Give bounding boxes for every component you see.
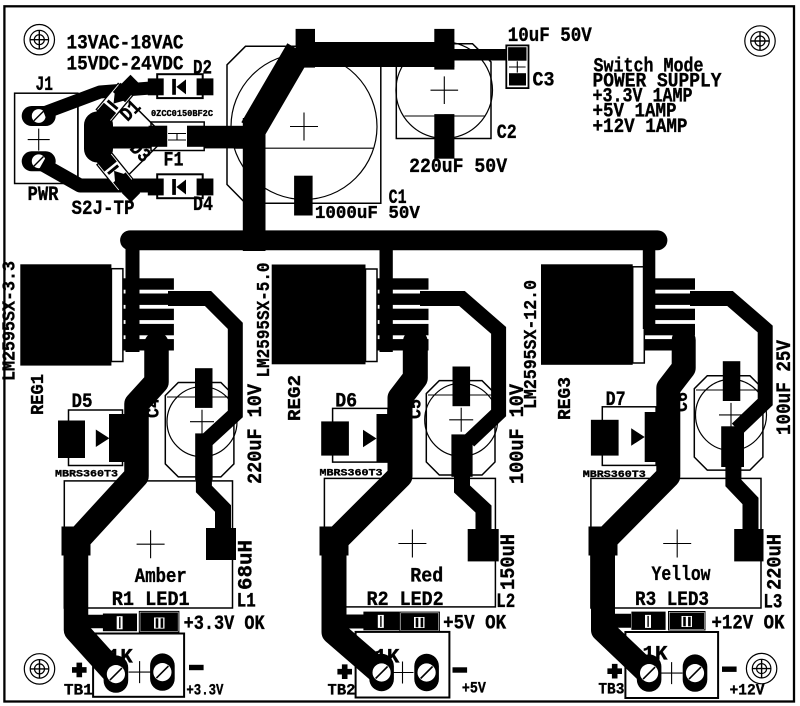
svg-text:C4: C4 — [145, 398, 165, 418]
svg-text:+12V: +12V — [730, 682, 765, 700]
svg-text:TB2: TB2 — [328, 681, 356, 699]
svg-text:C3: C3 — [533, 70, 555, 93]
svg-text:D7: D7 — [606, 389, 626, 412]
svg-text:220uH: 220uH — [765, 534, 788, 590]
svg-text:REG1: REG1 — [29, 374, 49, 415]
svg-text:TB3: TB3 — [598, 681, 624, 699]
svg-text:+5V: +5V — [462, 680, 486, 698]
svg-text:68uH: 68uH — [236, 540, 259, 590]
svg-text:L2: L2 — [496, 591, 515, 614]
svg-text:Amber: Amber — [135, 566, 187, 589]
svg-text:100uF 25V: 100uF 25V — [774, 340, 797, 435]
svg-text:S2J-TP: S2J-TP — [72, 198, 135, 221]
svg-text:R1 LED1: R1 LED1 — [112, 589, 190, 612]
svg-text:220uF 10V: 220uF 10V — [245, 384, 268, 484]
svg-text:+12V 1AMP: +12V 1AMP — [593, 116, 688, 139]
svg-text:0ZCC0150BF2C: 0ZCC0150BF2C — [151, 108, 213, 119]
svg-text:TB1: TB1 — [64, 681, 93, 699]
svg-text:C2: C2 — [497, 122, 517, 145]
svg-text:+5V OK: +5V OK — [443, 613, 506, 636]
svg-text:10uF 50V: 10uF 50V — [508, 25, 592, 48]
svg-text:+3.3V OK: +3.3V OK — [184, 613, 265, 636]
svg-text:LM2595SX-12.0: LM2595SX-12.0 — [522, 280, 542, 409]
svg-text:R3 LED3: R3 LED3 — [635, 589, 709, 612]
svg-text:MBRS360T3: MBRS360T3 — [583, 469, 646, 481]
svg-text:+12V OK: +12V OK — [712, 613, 785, 636]
svg-text:REG3: REG3 — [556, 377, 576, 420]
svg-text:D6: D6 — [335, 391, 357, 414]
svg-text:LM2595SX-3.3: LM2595SX-3.3 — [1, 261, 21, 381]
svg-text:13VAC-18VAC: 13VAC-18VAC — [67, 33, 184, 56]
svg-text:1000uF 50V: 1000uF 50V — [315, 204, 420, 224]
svg-text:Yellow: Yellow — [652, 564, 711, 587]
svg-text:C6: C6 — [673, 392, 693, 412]
svg-text:REG2: REG2 — [286, 375, 306, 421]
svg-text:D2: D2 — [193, 57, 212, 80]
svg-text:F1: F1 — [164, 149, 184, 172]
svg-text:15VDC-24VDC: 15VDC-24VDC — [67, 54, 184, 77]
svg-text:MBRS360T3: MBRS360T3 — [55, 469, 118, 481]
svg-text:L1: L1 — [237, 591, 256, 614]
svg-text:PWR: PWR — [28, 184, 59, 207]
svg-text:L3: L3 — [763, 592, 782, 615]
svg-text:R2 LED2: R2 LED2 — [367, 589, 444, 612]
svg-text:Red: Red — [410, 566, 443, 589]
svg-text:220uF 50V: 220uF 50V — [409, 156, 507, 179]
svg-text:C5: C5 — [407, 399, 427, 419]
svg-text:D4: D4 — [193, 194, 213, 217]
svg-text:150uH: 150uH — [498, 534, 521, 590]
svg-text:+3.3V: +3.3V — [186, 681, 223, 699]
